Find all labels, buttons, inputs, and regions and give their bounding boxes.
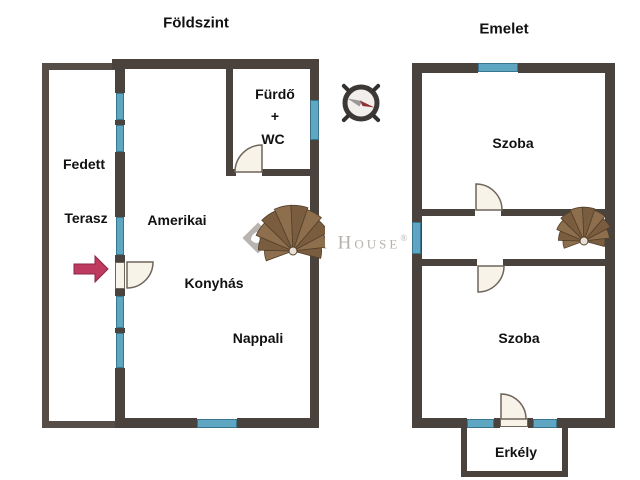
mid-wall-segment	[115, 59, 125, 93]
mid-wall-jamb	[115, 289, 125, 296]
window-mid-wall-5	[116, 333, 124, 368]
room-label-upper-room-top: Szoba	[492, 135, 533, 151]
entrance-arrow-icon	[74, 256, 108, 282]
balcony-wall-left	[461, 428, 467, 477]
room-label-bath-line2: +	[271, 108, 279, 124]
window-bath-right	[310, 100, 319, 140]
spiral-stair-icon-upper	[550, 202, 612, 264]
window-balcony-left	[467, 419, 494, 428]
upper-room-bottom-door-arc	[478, 266, 504, 292]
room-label-living-line1: Amerikai	[147, 212, 206, 228]
landing-wall-lower-a	[422, 259, 477, 266]
bath-wall-bottom-a	[226, 169, 236, 176]
mid-wall-jamb	[115, 255, 125, 262]
balcony-wall-right	[562, 428, 568, 477]
upper-wall-bottom-a	[412, 418, 467, 428]
upper-wall-bottom-b	[557, 418, 615, 428]
upper-floor-title: Emelet	[479, 21, 528, 38]
window-mid-wall-4	[116, 296, 124, 328]
window-mid-wall-1	[116, 93, 124, 120]
mid-wall-segment	[115, 368, 125, 428]
terrace-wall-top	[42, 63, 115, 70]
terrace-wall-bottom	[42, 421, 118, 428]
window-upper-left	[412, 222, 421, 254]
ground-wall-bottom-right	[237, 418, 319, 428]
landing-wall-upper-a	[422, 209, 475, 216]
window-balcony-right	[533, 419, 557, 428]
room-label-bath-line1: Fürdő	[255, 86, 295, 102]
watermark-reg-icon: ®	[400, 233, 407, 243]
room-label-balcony: Erkély	[495, 444, 537, 460]
bath-wall-left	[226, 69, 233, 176]
mid-wall-segment	[115, 152, 125, 217]
balcony-wall-bottom	[461, 471, 568, 477]
bath-wall-bottom-b	[262, 169, 310, 176]
upper-wall-top-b	[518, 63, 615, 73]
ground-wall-top	[112, 59, 319, 69]
room-label-upper-room-bottom: Szoba	[498, 330, 539, 346]
room-label-bath-line3: WC	[261, 131, 284, 147]
terrace-wall-left	[42, 63, 49, 428]
room-label-living-line2: Konyhás	[184, 275, 243, 291]
entrance-door-arc	[127, 262, 153, 288]
window-mid-wall-3	[116, 217, 124, 255]
entrance-door-panel	[115, 262, 125, 289]
room-label-terrace-line2: Terasz	[64, 210, 107, 226]
ground-wall-bottom-left	[115, 418, 197, 428]
window-mid-wall-2	[116, 125, 124, 152]
ground-floor-title: Földszint	[163, 15, 229, 32]
spiral-stair-icon-ground	[245, 200, 325, 266]
balcony-door-panel	[500, 418, 528, 427]
floor-plan-canvas: Duna House® Földszint Emelet	[0, 0, 640, 480]
room-label-living-line3: Nappali	[233, 330, 284, 346]
balcony-door-arc	[501, 394, 526, 419]
window-ground-bottom	[197, 419, 237, 428]
bathroom-door-arc	[235, 145, 262, 172]
upper-room-top-door-arc	[476, 184, 502, 210]
room-label-terrace-line1: Fedett	[63, 156, 105, 172]
window-upper-top	[478, 63, 518, 72]
compass-icon	[344, 86, 378, 120]
